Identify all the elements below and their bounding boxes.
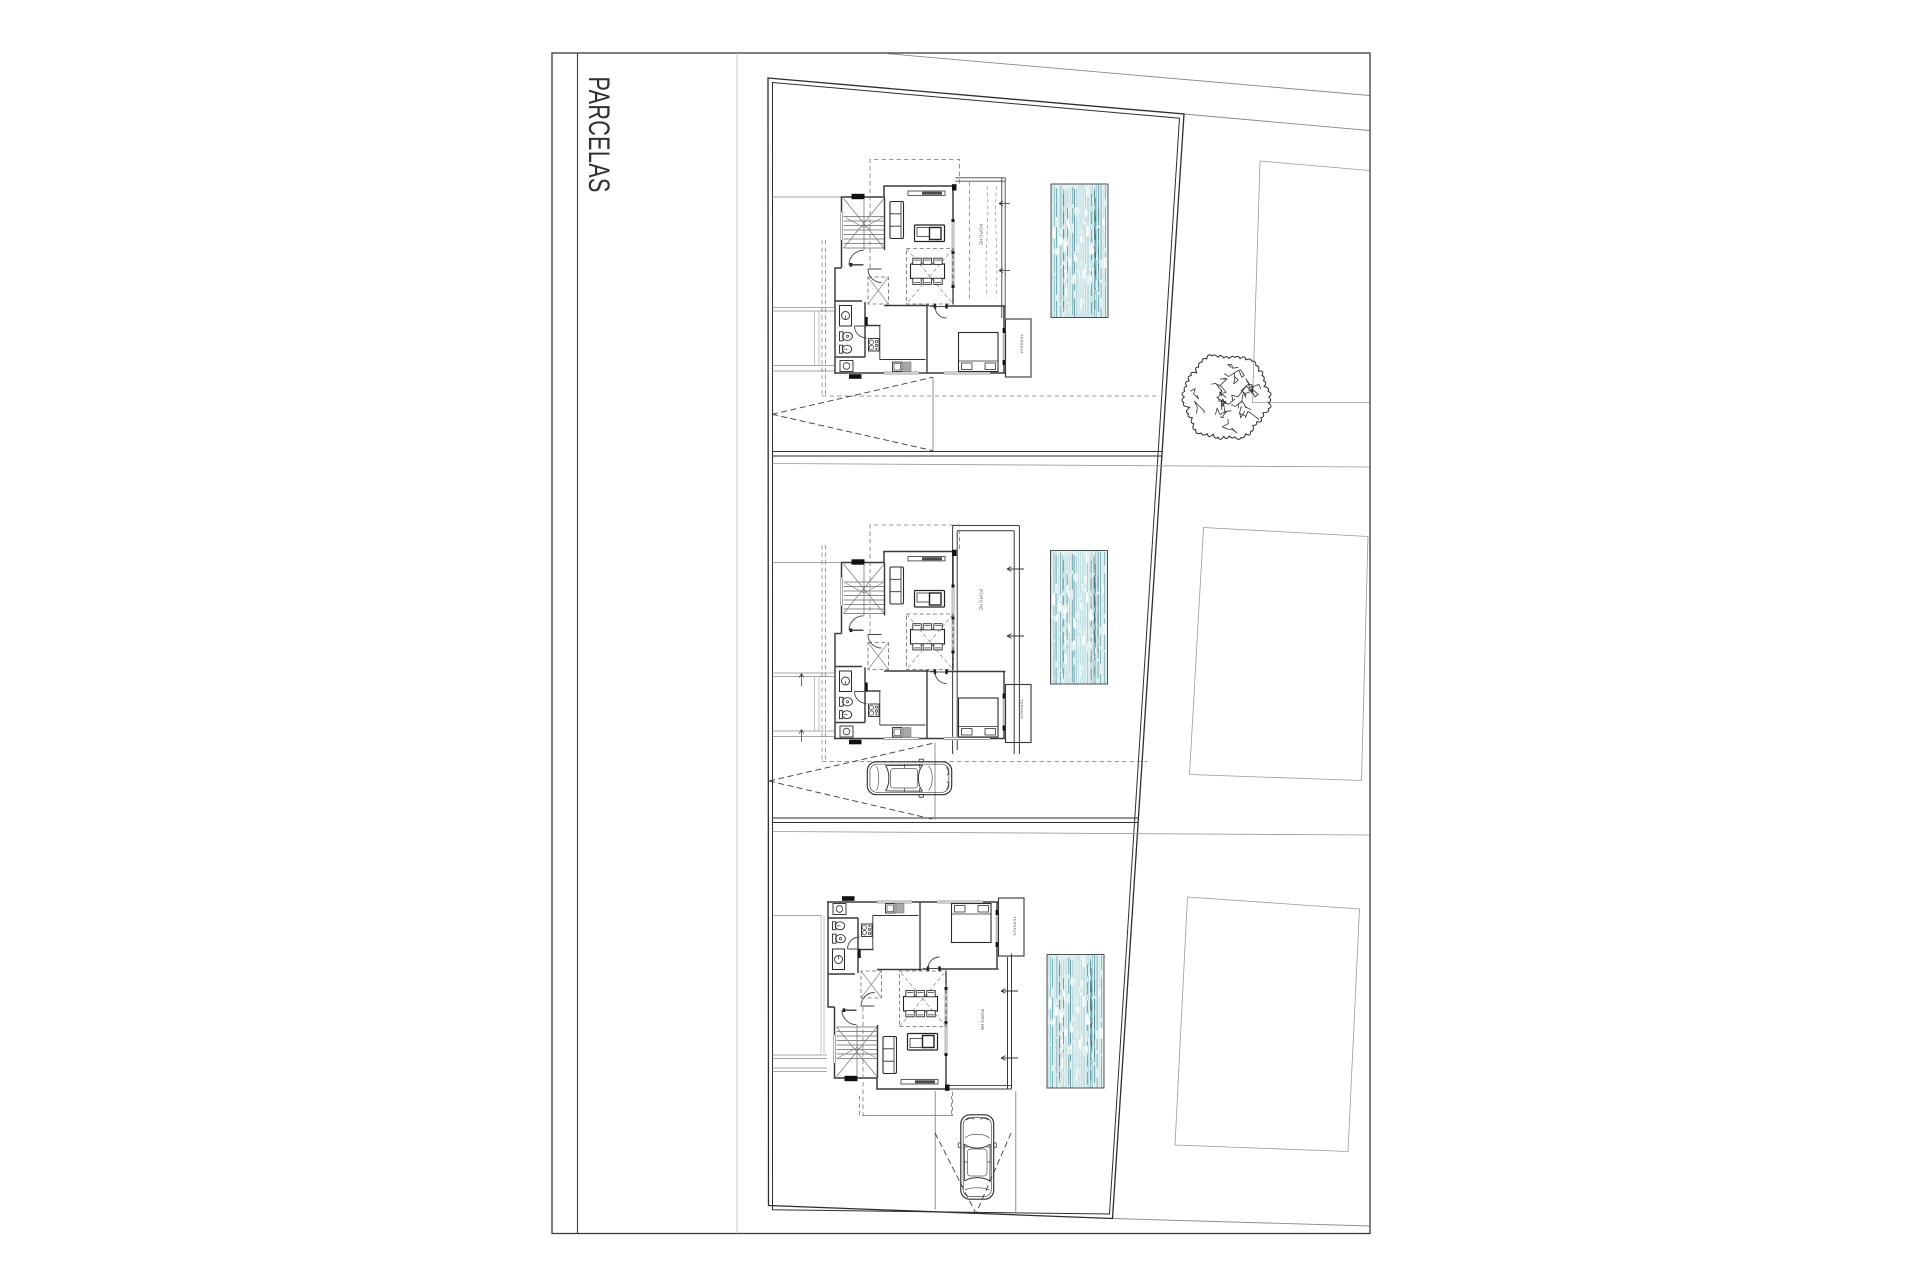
svg-text:PORCHE: PORCHE [979,224,984,246]
svg-text:PORCHE: PORCHE [979,589,984,611]
svg-text:TERRAZA: TERRAZA [1020,334,1024,354]
svg-text:TERRAZA: TERRAZA [1020,699,1024,719]
svg-text:PARCELAS: PARCELAS [582,77,614,193]
svg-text:PORCHE: PORCHE [980,1009,985,1031]
svg-text:TERRAZA: TERRAZA [1013,916,1017,936]
